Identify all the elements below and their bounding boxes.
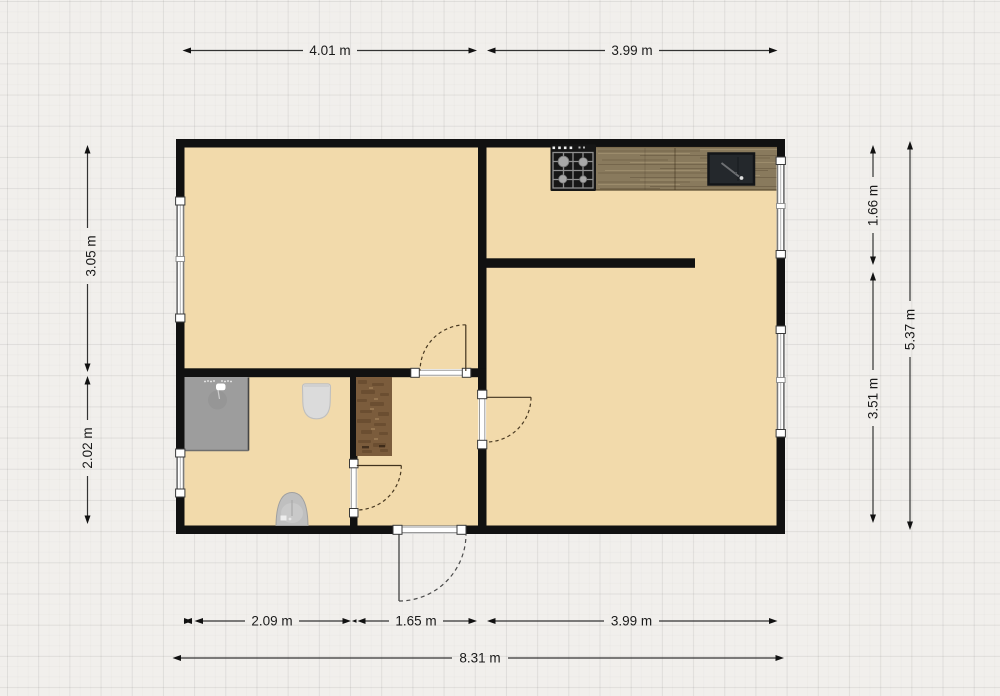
svg-text:2.02 m: 2.02 m	[80, 427, 95, 468]
svg-text:5.37 m: 5.37 m	[903, 309, 918, 350]
svg-text:3.99 m: 3.99 m	[611, 43, 652, 58]
svg-text:4.01 m: 4.01 m	[309, 43, 350, 58]
svg-text:1.65 m: 1.65 m	[395, 614, 436, 629]
svg-text:3.51 m: 3.51 m	[866, 378, 881, 419]
svg-text:2.09 m: 2.09 m	[251, 614, 292, 629]
svg-text:3.99 m: 3.99 m	[611, 614, 652, 629]
svg-text:3.05 m: 3.05 m	[84, 235, 99, 276]
svg-text:8.31 m: 8.31 m	[459, 651, 500, 666]
svg-text:1.66 m: 1.66 m	[866, 185, 881, 226]
